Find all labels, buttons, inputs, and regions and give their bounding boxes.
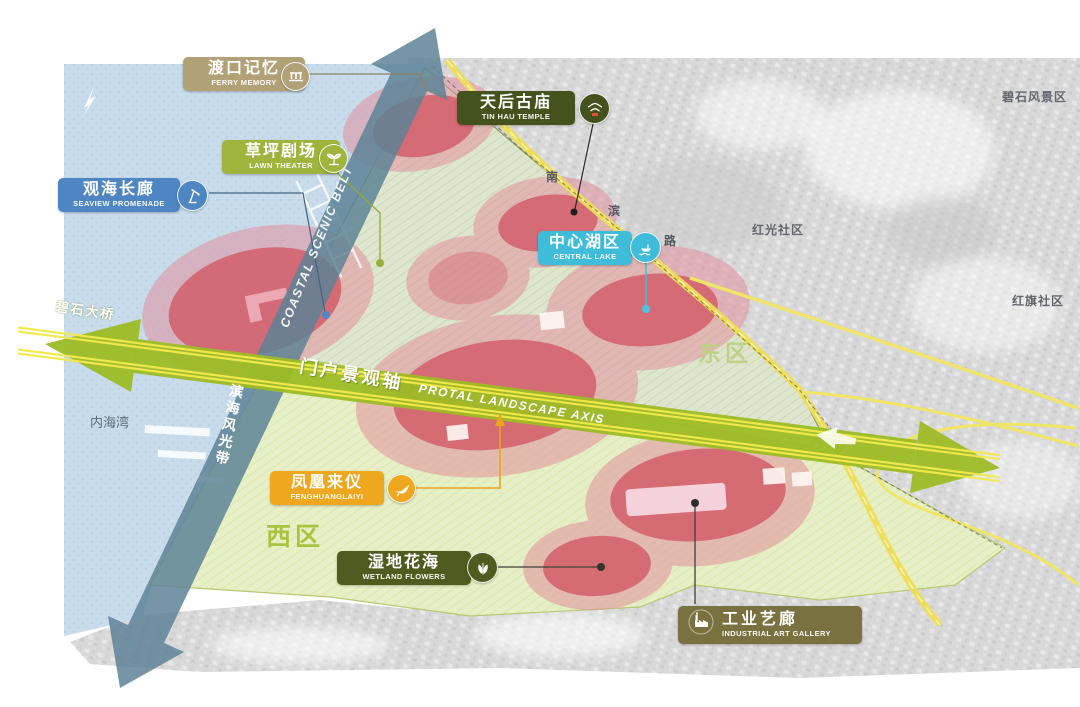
label-wetland-flowers-zh: 湿地花海	[343, 554, 465, 572]
label-tin-hau-temple-zh: 天后古庙	[463, 94, 569, 112]
pier-icon	[281, 62, 310, 91]
label-industrial-art-gallery-zh: 工业艺廊	[722, 611, 831, 629]
crane-icon	[177, 180, 208, 211]
label-seaview-promenade: 观海长廊 SEAVIEW PROMENADE	[58, 178, 180, 212]
factory-icon	[688, 609, 714, 640]
boat-icon	[630, 232, 661, 263]
hongguang-community-label: 红光社区	[752, 221, 804, 238]
bishi-scenic-label: 碧石风景区	[1002, 88, 1067, 105]
road-name-char-bin: 滨	[608, 202, 620, 219]
label-industrial-art-gallery: 工业艺廊 INDUSTRIAL ART GALLERY	[678, 606, 862, 644]
road-name-char-nan: 南	[546, 168, 558, 185]
label-industrial-art-gallery-en: INDUSTRIAL ART GALLERY	[722, 629, 831, 638]
label-fenghuanglaiyi-zh: 凤凰来仪	[276, 474, 378, 492]
zone-east-label: 东区	[698, 334, 752, 368]
temple-icon	[579, 93, 610, 124]
label-fenghuanglaiyi: 凤凰来仪 FENGHUANGLAIYI	[270, 471, 384, 505]
label-central-lake-zh: 中心湖区	[544, 234, 626, 252]
phoenix-icon	[387, 474, 416, 503]
label-central-lake-en: CENTRAL LAKE	[544, 252, 626, 261]
zone-west-label: 西区	[266, 517, 324, 553]
butterfly-icon	[467, 552, 498, 583]
label-seaview-promenade-zh: 观海长廊	[64, 181, 174, 199]
road-name-char-lu: 路	[664, 232, 676, 249]
label-central-lake: 中心湖区 CENTRAL LAKE	[538, 231, 632, 265]
sprout-icon	[319, 144, 348, 173]
label-wetland-flowers-en: WETLAND FLOWERS	[343, 572, 465, 581]
label-fenghuanglaiyi-en: FENGHUANGLAIYI	[276, 492, 378, 501]
label-tin-hau-temple-en: TIN HAU TEMPLE	[463, 112, 569, 121]
label-lawn-theater-en: LAWN THEATER	[228, 161, 334, 170]
masterplan-canvas: 门户景观轴 PROTAL LANDSCAPE AXIS COASTAL SCEN…	[0, 0, 1080, 707]
hongqi-community-label: 红旗社区	[1012, 292, 1064, 309]
inner-bay-label: 内海湾	[90, 412, 129, 431]
label-seaview-promenade-en: SEAVIEW PROMENADE	[64, 199, 174, 208]
label-wetland-flowers: 湿地花海 WETLAND FLOWERS	[337, 551, 471, 585]
label-tin-hau-temple: 天后古庙 TIN HAU TEMPLE	[457, 91, 575, 125]
